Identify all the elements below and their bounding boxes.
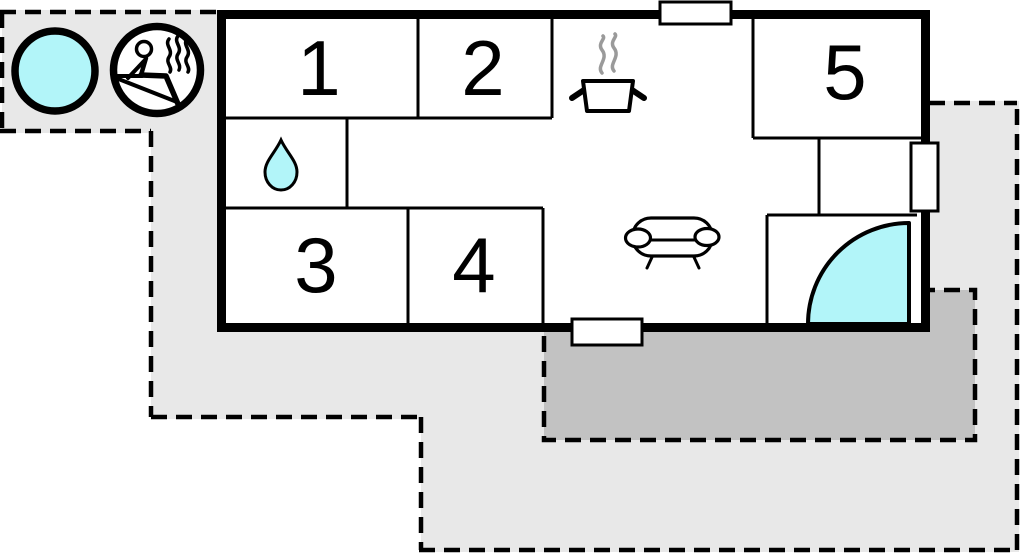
room-label-4: 4 (424, 215, 524, 315)
window-bottom-icon (572, 319, 642, 345)
floor-plan: 1 2 3 4 5 (0, 0, 1024, 557)
sauna-person-head (137, 42, 152, 57)
room-label-1: 1 (269, 18, 369, 118)
sofa-left-armrest (626, 229, 651, 247)
pot-body (583, 81, 633, 111)
sofa-right-armrest (695, 229, 719, 246)
room-label-2: 2 (433, 18, 533, 118)
room-label-5: 5 (795, 22, 895, 122)
window-top-icon (660, 2, 731, 24)
room-label-3: 3 (266, 215, 366, 315)
sauna-icon (114, 27, 201, 114)
window-right-icon (911, 143, 938, 211)
hot-tub-icon (15, 31, 95, 111)
